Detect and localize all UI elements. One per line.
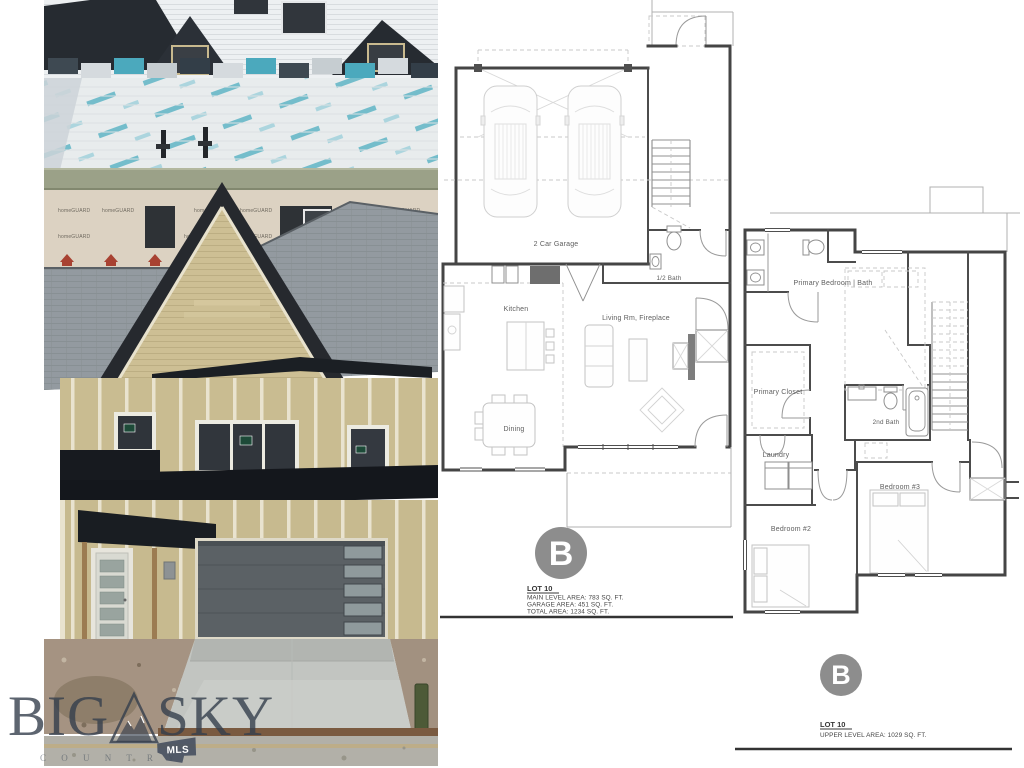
garage-door: [195, 538, 388, 639]
svg-text:homeGUARD: homeGUARD: [58, 234, 91, 240]
bed-bedroom2: [752, 545, 809, 607]
main-level-plan: 2 Car Garage 1/2 Bath Kitchen Living Rm,…: [440, 0, 733, 617]
lot-label-main: LOT 10: [527, 584, 552, 593]
main-level-floorplan: 2 Car Garage 1/2 Bath Kitchen Living Rm,…: [438, 0, 736, 620]
room-label-second-bath: 2nd Bath: [873, 419, 900, 426]
plan-badge-main: B: [535, 527, 587, 579]
sink-icon: [747, 270, 764, 285]
area-upper-level: UPPER LEVEL AREA: 1029 SQ. FT.: [820, 732, 927, 739]
room-label-laundry: Laundry: [763, 452, 790, 459]
mls-badge-text: MLS: [166, 745, 189, 757]
mountain-logo-icon: [108, 691, 160, 745]
sink-icon: [747, 240, 764, 255]
storage-closet: [696, 298, 728, 362]
room-label-dining: Dining: [503, 426, 524, 433]
utility-meter: [164, 562, 175, 579]
bench: [530, 266, 560, 284]
mls-listing-collage: homeGUARD homeGUARD homeGUARD homeGUARD …: [0, 0, 1024, 768]
patio-door-swing: [695, 415, 727, 447]
second-bath-fixtures: [848, 385, 928, 436]
svg-text:B: B: [549, 535, 574, 573]
fireplace-icon: [688, 334, 695, 380]
svg-text:B: B: [831, 660, 851, 690]
room-label-kitchen: Kitchen: [504, 306, 529, 313]
window-opening: [145, 206, 175, 248]
upper-window-left: [114, 412, 156, 453]
toilet-icon: [667, 232, 681, 250]
entry-door: [91, 548, 133, 650]
room-label-bedroom3: Bedroom #3: [880, 484, 920, 491]
upper-level-plan: Primary Bedroom | Bath Primary Closet 2n…: [735, 187, 1020, 749]
svg-text:homeGUARD: homeGUARD: [102, 208, 135, 214]
roof-underlayment: [44, 78, 438, 170]
wrap-brand-text: homeGUARD: [58, 208, 91, 214]
construction-photo: homeGUARD homeGUARD homeGUARD homeGUARD …: [44, 0, 438, 766]
living-furniture: [585, 325, 695, 432]
fascia-band: [44, 168, 438, 190]
front-door-swing: [676, 16, 706, 46]
upper-level-floorplan: Primary Bedroom | Bath Primary Closet 2n…: [733, 180, 1024, 752]
dryer-icon: [789, 462, 812, 489]
rug-icon: [640, 388, 684, 432]
patio-outline: [567, 447, 731, 527]
room-label-primary-closet: Primary Closet: [754, 389, 803, 396]
kitchen-island: [507, 322, 544, 370]
half-bath-fixtures: [650, 226, 726, 269]
room-label-bedroom2: Bedroom #2: [771, 526, 811, 533]
toilet-icon: [808, 240, 824, 254]
washer-icon: [765, 462, 788, 489]
bed-bedroom3: [870, 490, 928, 573]
big-sky-watermark: BIG SKY: [8, 688, 274, 745]
watermark-word-big: BIG: [8, 688, 109, 745]
garage-door-windows: [344, 546, 382, 635]
area-garage: GARAGE AREA: 451 SQ. FT.: [527, 602, 613, 609]
toilet-icon: [884, 393, 897, 409]
sofa-icon: [585, 325, 613, 387]
room-label-primary: Primary Bedroom | Bath: [794, 280, 873, 287]
hall-closet: [970, 478, 1005, 500]
area-main-level: MAIN LEVEL AREA: 783 SQ. FT.: [527, 595, 624, 602]
area-total: TOTAL AREA: 1234 SQ. FT.: [527, 609, 609, 616]
entry-double-door: [566, 264, 600, 301]
laundry-fixtures: [760, 435, 812, 489]
upper-window-center: [195, 420, 299, 474]
kitchen-fixtures: [444, 286, 554, 370]
dining-set: [475, 395, 535, 455]
room-label-living: Living Rm, Fireplace: [602, 315, 670, 322]
linen-cabinet: [865, 443, 887, 458]
plan-badge-upper: B: [820, 654, 862, 696]
porch-upper-roof: [60, 450, 160, 480]
stairs-upper: [932, 302, 968, 430]
utility-post: [415, 684, 428, 732]
car-2: [565, 86, 624, 217]
lot-label-upper: LOT 10: [820, 720, 845, 729]
car-1: [481, 86, 540, 217]
fridge-icon: [444, 286, 464, 312]
svg-text:homeGUARD: homeGUARD: [240, 208, 273, 214]
room-label-half-bath: 1/2 Bath: [656, 275, 681, 282]
room-label-garage: 2 Car Garage: [534, 241, 579, 248]
stairs-main: [652, 140, 690, 228]
mls-badge: MLS: [156, 736, 197, 768]
montana-shape-icon: MLS: [156, 736, 197, 764]
chimney-outline: [930, 187, 983, 213]
